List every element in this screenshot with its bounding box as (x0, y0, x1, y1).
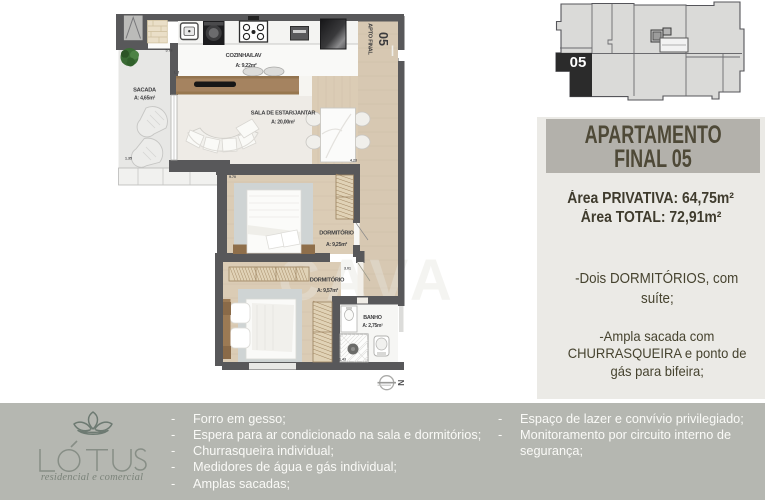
svg-text:05: 05 (570, 54, 587, 71)
svg-text:SACADA: SACADA (133, 88, 156, 94)
svg-text:A: 9,22m²: A: 9,22m² (235, 63, 257, 69)
svg-text:N: N (396, 380, 406, 386)
svg-text:5.78: 5.78 (166, 49, 173, 53)
svg-text:DORMITÓRIO: DORMITÓRIO (319, 229, 354, 237)
svg-text:1.35: 1.35 (125, 157, 132, 161)
svg-text:05: 05 (376, 32, 390, 46)
svg-text:9.70: 9.70 (229, 175, 236, 179)
svg-text:APTO FINAL: APTO FINAL (367, 23, 373, 55)
svg-text:A: 9,57m²: A: 9,57m² (317, 288, 339, 294)
svg-text:A: 9,25m²: A: 9,25m² (326, 242, 348, 248)
svg-text:3.01: 3.01 (344, 267, 351, 271)
svg-text:A: 4,65m²: A: 4,65m² (134, 96, 156, 102)
svg-text:DORMITÓRIO: DORMITÓRIO (310, 276, 345, 284)
svg-text:1.43: 1.43 (339, 358, 346, 362)
svg-text:COZINHA/LAV: COZINHA/LAV (226, 53, 262, 59)
svg-text:A: 20,00m²: A: 20,00m² (271, 120, 295, 126)
svg-text:SALA DE ESTAR/JANTAR: SALA DE ESTAR/JANTAR (251, 111, 316, 117)
svg-text:L.J: L.J (174, 71, 179, 75)
svg-text:A: 2,75m²: A: 2,75m² (362, 323, 383, 329)
svg-text:4.23: 4.23 (350, 159, 357, 163)
svg-text:BANHO: BANHO (363, 315, 382, 321)
